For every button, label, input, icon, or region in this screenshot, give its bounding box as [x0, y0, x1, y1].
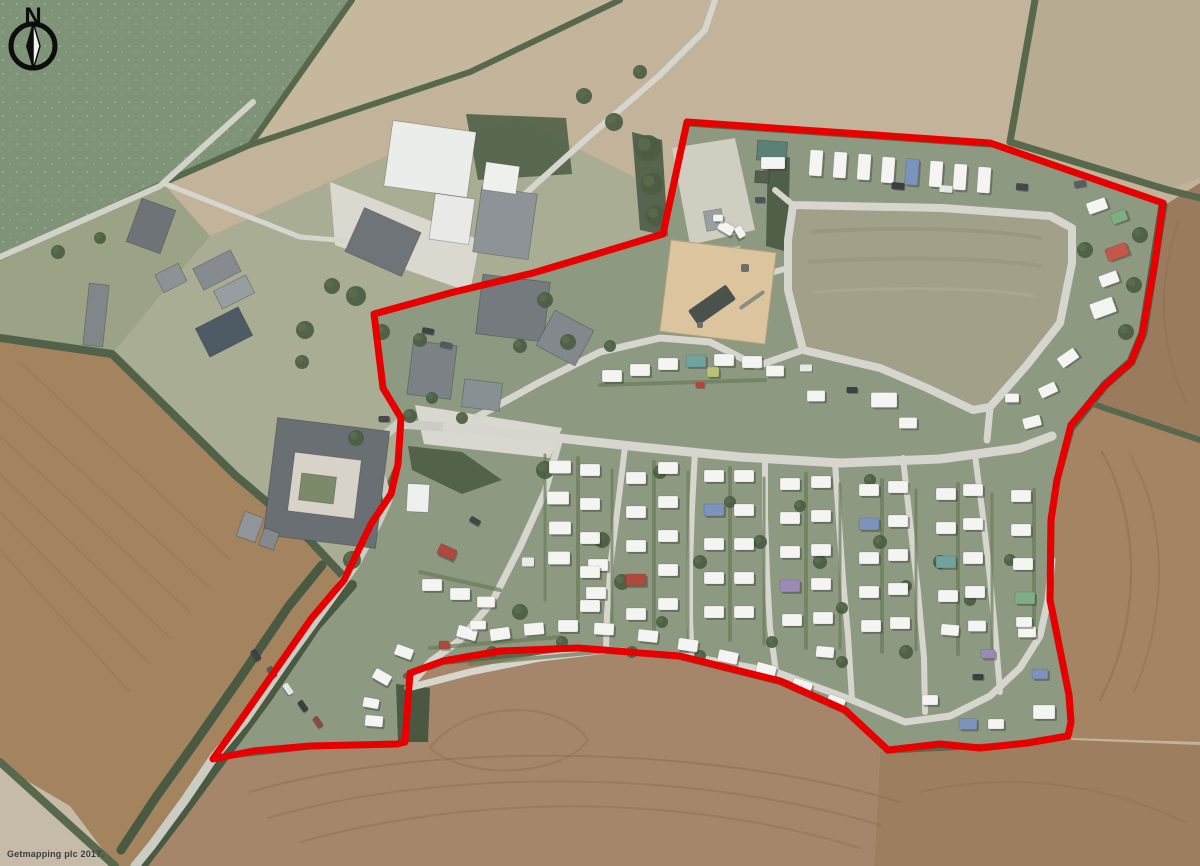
aerial-map: N Getmapping plc 2017. — [0, 0, 1200, 866]
map-credit: Getmapping plc 2017. — [7, 849, 104, 859]
field-field-se — [874, 737, 1200, 866]
play-area — [660, 240, 776, 344]
north-arrow: N — [0, 0, 66, 78]
aerial-photo — [0, 0, 1200, 866]
field-field-east-2 — [1052, 402, 1200, 742]
